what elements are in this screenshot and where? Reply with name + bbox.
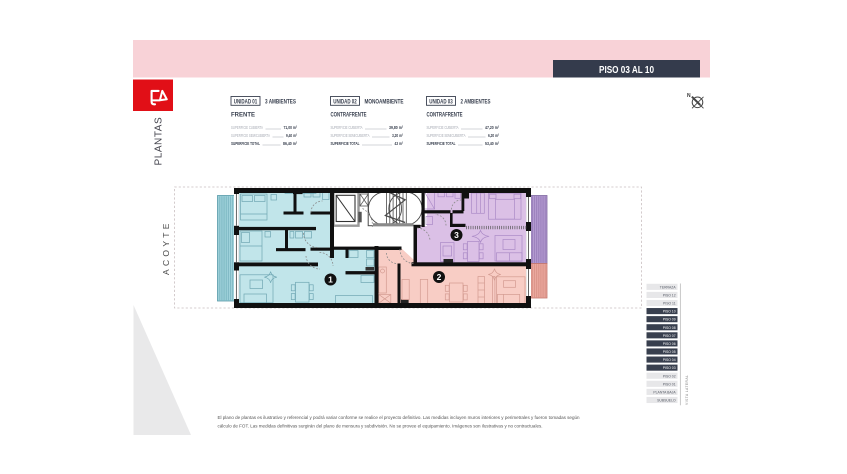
svg-text:MONOAMBIENTE: MONOAMBIENTE: [365, 98, 404, 105]
svg-text:PISO 01: PISO 01: [663, 382, 676, 386]
svg-text:CONTRAFRENTE: CONTRAFRENTE: [331, 112, 367, 119]
svg-text:PLANTA BAJA: PLANTA BAJA: [653, 390, 676, 394]
svg-text:SUBSUELO: SUBSUELO: [657, 399, 676, 403]
svg-text:SUPERFICIE TOTAL: SUPERFICIE TOTAL: [331, 141, 360, 146]
svg-text:FRENTE: FRENTE: [231, 112, 255, 119]
svg-text:SUPERFICIE TOTAL: SUPERFICIE TOTAL: [231, 141, 260, 146]
svg-text:PISO 02: PISO 02: [663, 374, 676, 378]
svg-text:ACOYTE: ACOYTE: [161, 220, 171, 275]
svg-text:PLANTAS: PLANTAS: [154, 117, 165, 166]
svg-text:CONTRAFRENTE: CONTRAFRENTE: [427, 112, 463, 119]
svg-text:UNIDAD 03: UNIDAD 03: [429, 98, 453, 105]
svg-text:PISO 03 AL 10: PISO 03 AL 10: [599, 65, 654, 76]
svg-text:PISO 10: PISO 10: [663, 310, 676, 314]
svg-text:PISO 05: PISO 05: [663, 350, 676, 354]
svg-text:3,20 m²: 3,20 m²: [392, 133, 403, 138]
svg-text:SUPERFICIE CUBIERTA: SUPERFICIE CUBIERTA: [331, 125, 363, 130]
svg-text:PISO 08: PISO 08: [663, 326, 676, 330]
svg-text:PISO 03: PISO 03: [663, 366, 676, 370]
svg-text:SUPERFICIE TOTAL: SUPERFICIE TOTAL: [427, 141, 456, 146]
svg-text:SUPERFICIE SEMICUBIERTA: SUPERFICIE SEMICUBIERTA: [427, 133, 466, 138]
svg-text:El plano de plantas es ilustra: El plano de plantas es ilustrativo y ref…: [218, 415, 580, 421]
svg-text:cálculo de FOT. Las medidas de: cálculo de FOT. Las medidas definitivas …: [218, 424, 543, 430]
svg-text:39,80 m²: 39,80 m²: [389, 125, 403, 130]
svg-text:86,40 m²: 86,40 m²: [283, 141, 297, 146]
svg-text:SUPERFICIE SEMICUBIERTA: SUPERFICIE SEMICUBIERTA: [331, 133, 370, 138]
svg-text:71,00 m²: 71,00 m²: [284, 125, 298, 130]
svg-text:UNIDAD 01: UNIDAD 01: [234, 98, 258, 105]
svg-text:1: 1: [328, 275, 333, 285]
svg-text:PISO 04: PISO 04: [663, 358, 676, 362]
svg-text:N: N: [687, 93, 691, 99]
svg-text:TERRAZA: TERRAZA: [660, 285, 677, 289]
svg-text:2 AMBIENTES: 2 AMBIENTES: [461, 98, 491, 105]
svg-text:PISO 06: PISO 06: [663, 342, 676, 346]
svg-text:43 m²: 43 m²: [395, 141, 404, 146]
svg-text:PISO 12: PISO 12: [663, 293, 676, 297]
svg-text:6,20 m²: 6,20 m²: [488, 133, 499, 138]
svg-text:3 AMBIENTES: 3 AMBIENTES: [265, 98, 296, 105]
svg-text:SUPERFICIE CUBIERTA: SUPERFICIE CUBIERTA: [427, 125, 459, 130]
svg-text:53,40 m²: 53,40 m²: [485, 141, 499, 146]
svg-text:PISO 07: PISO 07: [663, 334, 676, 338]
svg-text:SUPERFICIE CUBIERTA: SUPERFICIE CUBIERTA: [231, 125, 263, 130]
svg-text:UNIDAD 02: UNIDAD 02: [333, 98, 357, 105]
svg-text:3: 3: [454, 230, 459, 240]
svg-text:9,40 m²: 9,40 m²: [286, 133, 297, 138]
svg-text:VISTA LATERAL: VISTA LATERAL: [685, 375, 689, 405]
svg-text:PISO 11: PISO 11: [663, 302, 676, 306]
svg-text:47,20 m²: 47,20 m²: [485, 125, 499, 130]
svg-text:2: 2: [437, 272, 442, 282]
svg-text:SUPERFICIE SEMICUBIERTA: SUPERFICIE SEMICUBIERTA: [231, 133, 270, 138]
svg-text:PISO 09: PISO 09: [663, 318, 676, 322]
